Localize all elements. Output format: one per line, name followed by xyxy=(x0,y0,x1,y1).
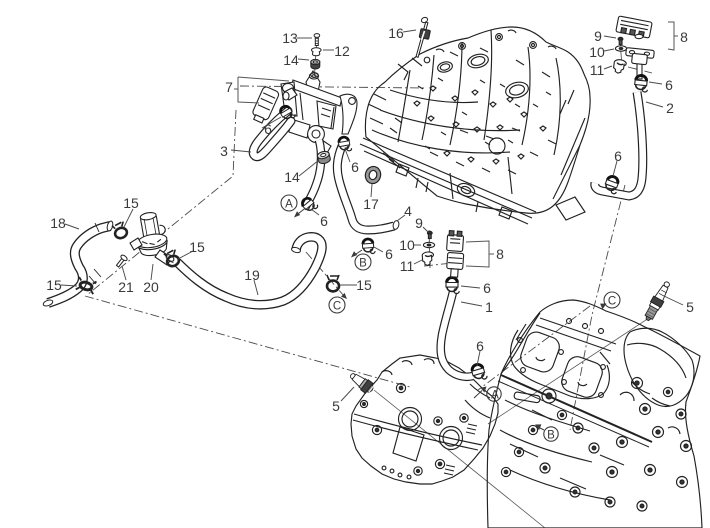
svg-text:6: 6 xyxy=(320,213,328,229)
svg-text:6: 6 xyxy=(476,338,484,354)
svg-text:9: 9 xyxy=(594,28,602,44)
svg-text:A: A xyxy=(285,199,293,211)
svg-text:8: 8 xyxy=(680,29,688,45)
svg-text:19: 19 xyxy=(244,267,260,283)
svg-text:5: 5 xyxy=(332,398,340,414)
svg-text:4: 4 xyxy=(404,203,412,219)
svg-text:13: 13 xyxy=(282,30,298,46)
svg-text:B: B xyxy=(359,258,367,270)
svg-text:B: B xyxy=(547,430,555,442)
svg-text:10: 10 xyxy=(399,237,415,253)
svg-text:17: 17 xyxy=(363,196,379,212)
svg-text:15: 15 xyxy=(123,195,139,211)
svg-text:5: 5 xyxy=(686,299,694,315)
svg-text:11: 11 xyxy=(590,62,605,78)
svg-text:21: 21 xyxy=(118,279,134,295)
svg-text:6: 6 xyxy=(385,246,393,262)
svg-text:2: 2 xyxy=(666,100,674,116)
svg-text:C: C xyxy=(608,296,616,308)
svg-text:6: 6 xyxy=(614,148,622,164)
svg-text:16: 16 xyxy=(388,25,404,41)
svg-text:1: 1 xyxy=(485,299,493,315)
svg-text:6: 6 xyxy=(351,159,359,175)
svg-text:6: 6 xyxy=(665,77,673,93)
svg-text:18: 18 xyxy=(50,215,66,231)
svg-text:12: 12 xyxy=(334,43,350,59)
svg-text:3: 3 xyxy=(220,143,228,159)
svg-text:15: 15 xyxy=(46,277,62,293)
svg-text:20: 20 xyxy=(143,279,159,295)
svg-text:9: 9 xyxy=(415,215,423,231)
svg-text:14: 14 xyxy=(283,52,299,68)
svg-text:A: A xyxy=(491,390,499,402)
svg-text:15: 15 xyxy=(356,277,372,293)
svg-text:8: 8 xyxy=(496,246,504,262)
svg-text:6: 6 xyxy=(264,121,272,137)
svg-text:10: 10 xyxy=(589,44,605,60)
svg-text:15: 15 xyxy=(189,239,205,255)
svg-text:14: 14 xyxy=(284,169,300,185)
svg-text:6: 6 xyxy=(483,280,491,296)
svg-text:7: 7 xyxy=(225,79,233,95)
svg-text:11: 11 xyxy=(400,258,415,274)
svg-text:C: C xyxy=(333,301,341,313)
